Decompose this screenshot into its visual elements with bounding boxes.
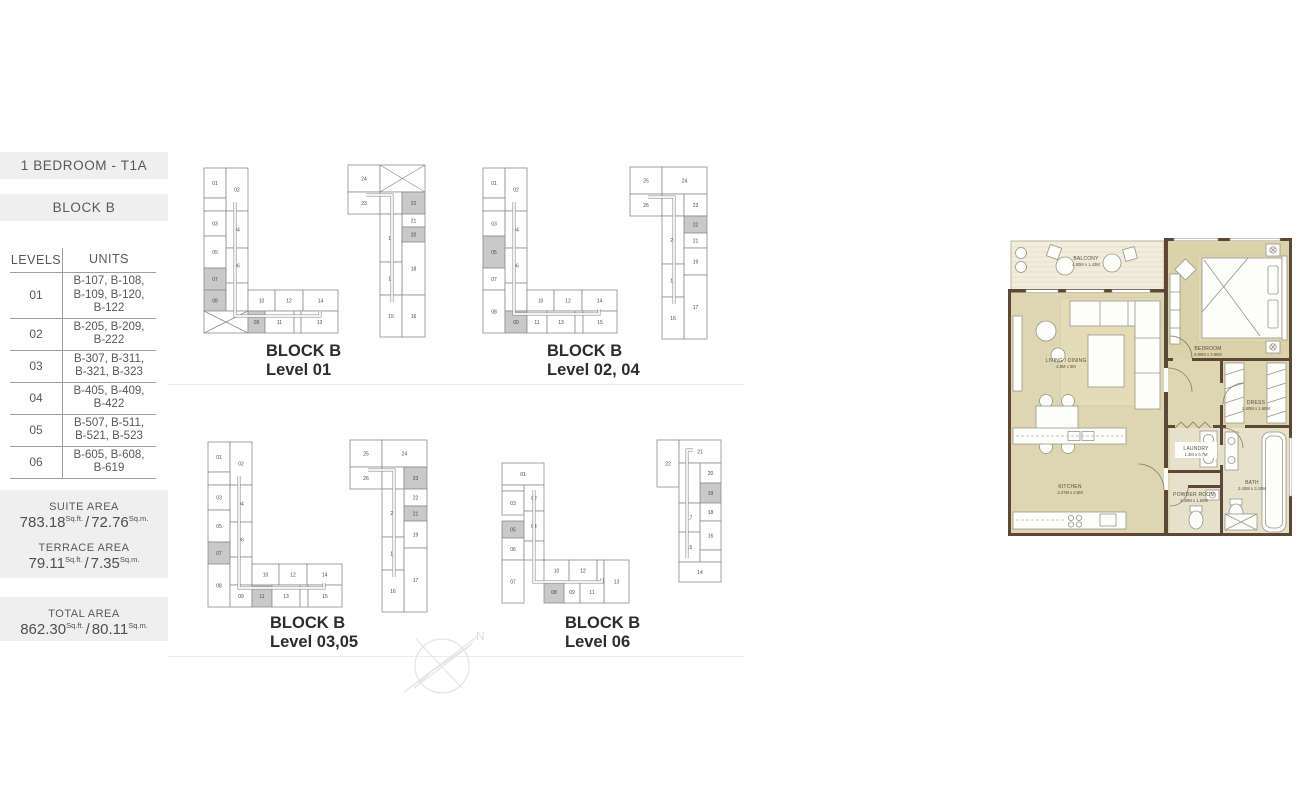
table-header-row: LEVELS UNITS xyxy=(10,248,156,273)
unit-number: 19 xyxy=(693,259,699,265)
unit-number: 10 xyxy=(554,568,560,574)
room-name-label: LAUNDRY xyxy=(1183,446,1209,452)
unit-number: 03 xyxy=(510,501,516,507)
unit-number: 02 xyxy=(238,461,244,467)
terrace-area-value: 79.11Sq.ft./7.35Sq.m. xyxy=(0,555,168,572)
unit-number: 05 xyxy=(510,527,516,533)
svg-text:N: N xyxy=(476,629,485,643)
levels-units-table: LEVELS UNITS 01B-107, B-108, B-109, B-12… xyxy=(10,248,156,479)
unit-number: 09 xyxy=(238,594,244,600)
room-name-label: KITCHEN xyxy=(1058,484,1082,490)
unit-number: 23 xyxy=(693,203,699,209)
room-name-label: LIVING / DINING xyxy=(1045,358,1086,364)
unit-cell xyxy=(502,485,524,491)
unit-number: 11 xyxy=(259,594,264,600)
block-diagram-level-06: 0103020504060710121308091122212019181716… xyxy=(497,427,737,619)
room-dims-label: 2.40M x 1.60M xyxy=(1242,406,1270,411)
divider-line xyxy=(168,384,744,385)
unit-cell xyxy=(226,283,248,311)
unit-number: 10 xyxy=(259,298,265,304)
unit-type-header: 1 BEDROOM - T1A xyxy=(0,152,168,179)
unit-number: 08 xyxy=(216,583,222,589)
unit-number: 16 xyxy=(390,589,396,595)
unit-number: 20 xyxy=(411,232,417,238)
unit-number: 16 xyxy=(708,533,714,539)
unit-number: 13 xyxy=(614,579,620,585)
total-area-value: 862.30Sq.ft./80.11Sq.m. xyxy=(0,621,168,638)
unit-number: 24 xyxy=(682,178,688,184)
compass-icon: N xyxy=(396,624,496,704)
diagram-caption-level-06: BLOCK BLevel 06 xyxy=(565,614,640,652)
block-diagram-level-02-04: 0102030405060708101214091113152524262322… xyxy=(479,153,719,345)
unit-number: 05 xyxy=(216,524,222,530)
suite-terrace-area-box: SUITE AREA 783.18Sq.ft./72.76Sq.m. TERRA… xyxy=(0,490,168,578)
unit-number: 17 xyxy=(693,305,699,311)
diagram-caption-level-03-05: BLOCK BLevel 03,05 xyxy=(270,614,358,652)
unit-number: 12 xyxy=(565,298,571,304)
unit-cell xyxy=(505,283,527,311)
unit-number: 05 xyxy=(212,250,218,256)
unit-number: 15 xyxy=(322,594,328,600)
unit-number: 17 xyxy=(413,578,419,584)
suite-area-value: 783.18Sq.ft./72.76Sq.m. xyxy=(0,514,168,531)
unit-number: 14 xyxy=(597,298,603,304)
level-cell: 05 xyxy=(10,423,62,437)
block-diagram-level-03-05: 0102030405060708101214091113152524262322… xyxy=(204,427,444,619)
units-cell: B-507, B-511, B-521, B-523 xyxy=(62,415,156,446)
unit-number: 26 xyxy=(643,203,649,209)
room-dims-label: 3.37M x 2.8M xyxy=(1057,490,1083,495)
unit-number: 10 xyxy=(263,572,269,578)
table-row: 04B-405, B-409, B-422 xyxy=(10,383,156,415)
unit-number: 20 xyxy=(708,471,714,477)
unit-cell xyxy=(230,557,252,585)
room-dims-label: 5.90M x 3.90M xyxy=(1194,352,1222,357)
floor-plan: BALCONY4.80M x 1.43MLIVING / DINING4.8M … xyxy=(1008,238,1292,545)
unit-number: 12 xyxy=(290,572,296,578)
block-diagram-level-01: 0102030405060708101214091113242322211920… xyxy=(200,153,440,345)
unit-number: 01 xyxy=(520,472,526,478)
room-name-label: BEDROOM xyxy=(1194,346,1221,352)
unit-number: 08 xyxy=(212,298,218,304)
unit-number: 15 xyxy=(597,320,603,326)
level-cell: 03 xyxy=(10,359,62,373)
level-cell: 06 xyxy=(10,455,62,469)
unit-number: 22 xyxy=(411,201,417,207)
unit-number: 16 xyxy=(670,316,676,322)
unit-number: 24 xyxy=(402,451,408,457)
unit-cell xyxy=(294,311,301,333)
unit-number: 13 xyxy=(558,320,564,326)
diagram-caption-level-02-04: BLOCK BLevel 02, 04 xyxy=(547,342,640,380)
unit-number: 01 xyxy=(216,455,222,461)
table-row: 06B-605, B-608, B-619 xyxy=(10,447,156,479)
unit-number: 11 xyxy=(589,590,594,596)
unit-number: 26 xyxy=(363,476,369,482)
unit-number: 02 xyxy=(234,187,240,193)
unit-number: 14 xyxy=(322,572,328,578)
unit-cell xyxy=(679,463,700,503)
unit-number: 25 xyxy=(363,451,369,457)
units-column-header: UNITS xyxy=(62,248,156,272)
unit-number: 01 xyxy=(491,181,497,187)
room-dims-label: 1.40M x 1.50M xyxy=(1180,498,1208,503)
unit-number: 19 xyxy=(413,532,419,538)
unit-number: 07 xyxy=(212,277,218,283)
unit-number: 22 xyxy=(413,495,419,501)
unit-number: 09 xyxy=(569,590,575,596)
levels-column-header: LEVELS xyxy=(10,248,62,272)
total-area-box: TOTAL AREA 862.30Sq.ft./80.11Sq.m. xyxy=(0,597,168,641)
unit-number: 16 xyxy=(411,314,417,320)
room-name-label: POWDER ROOM xyxy=(1173,492,1215,498)
unit-number: 09 xyxy=(513,320,519,326)
unit-number: 08 xyxy=(551,590,557,596)
unit-number: 11 xyxy=(534,320,539,326)
unit-number: 13 xyxy=(283,594,289,600)
bedroom-wardrobe xyxy=(1170,274,1180,344)
unit-number: 23 xyxy=(361,201,367,207)
unit-number: 08 xyxy=(491,309,497,315)
suite-area-label: SUITE AREA xyxy=(0,501,168,513)
unit-number: 02 xyxy=(513,187,519,193)
unit-cell xyxy=(597,560,604,581)
page: { "sidebar": { "unit_type": "1 BEDROOM -… xyxy=(0,0,1300,800)
unit-number: 12 xyxy=(580,568,586,574)
bed xyxy=(1202,256,1287,340)
tv-unit xyxy=(1013,316,1022,391)
room-dims-label: 4.80M x 1.43M xyxy=(1072,262,1100,267)
unit-number: 21 xyxy=(411,218,417,224)
table-row: 01B-107, B-108, B-109, B-120, B-122 xyxy=(10,273,156,319)
room-dims-label: 1.4M x 0.7M xyxy=(1184,452,1208,457)
unit-number: 11 xyxy=(277,320,282,326)
room-dims-label: 4.8M x 5M xyxy=(1056,364,1076,369)
coffee-table xyxy=(1088,335,1124,387)
terrace-area-label: TERRACE AREA xyxy=(0,542,168,554)
unit-number: 14 xyxy=(697,570,703,576)
unit-number: 13 xyxy=(317,320,323,326)
unit-number: 25 xyxy=(643,178,649,184)
unit-number: 21 xyxy=(413,511,419,517)
table-divider xyxy=(62,248,63,479)
table-row: 05B-507, B-511, B-521, B-523 xyxy=(10,415,156,447)
level-cell: 02 xyxy=(10,327,62,341)
unit-number: 03 xyxy=(212,221,218,227)
block-header: BLOCK B xyxy=(0,194,168,221)
total-area-label: TOTAL AREA xyxy=(0,608,168,620)
units-cell: B-605, B-608, B-619 xyxy=(62,447,156,478)
unit-number: 23 xyxy=(413,476,419,482)
unit-number: 10 xyxy=(538,298,544,304)
unit-number: 12 xyxy=(286,298,292,304)
unit-number: 18 xyxy=(708,510,714,516)
unit-number: 22 xyxy=(665,461,671,467)
unit-cell xyxy=(204,198,226,211)
unit-number: 19 xyxy=(708,491,714,497)
room-dims-label: 2.40M x 3.10M xyxy=(1238,486,1266,491)
units-cell: B-307, B-311, B-321, B-323 xyxy=(62,351,156,382)
table-row: 03B-307, B-311, B-321, B-323 xyxy=(10,351,156,383)
armchair xyxy=(1036,321,1056,341)
unit-number: 15 xyxy=(388,314,394,320)
level-cell: 01 xyxy=(10,288,62,302)
unit-cell xyxy=(483,198,505,211)
unit-number: 01 xyxy=(212,181,218,187)
room-name-label: BATH xyxy=(1245,480,1259,486)
unit-number: 03 xyxy=(216,495,222,501)
unit-number: 03 xyxy=(491,221,497,227)
unit-number: 07 xyxy=(216,551,222,557)
unit-cell xyxy=(208,472,230,485)
unit-number: 21 xyxy=(697,449,703,455)
unit-number: 18 xyxy=(411,266,417,272)
units-cell: B-107, B-108, B-109, B-120, B-122 xyxy=(62,273,156,318)
unit-number: 06 xyxy=(510,547,516,553)
unit-number: 07 xyxy=(491,277,497,283)
room-name-label: DRESS xyxy=(1247,400,1266,406)
table-row: 02B-205, B-209, B-222 xyxy=(10,319,156,351)
room-name-label: BALCONY xyxy=(1073,256,1099,262)
unit-number: 24 xyxy=(361,176,367,182)
unit-number: 09 xyxy=(254,320,260,326)
unit-number: 21 xyxy=(693,238,699,244)
units-cell: B-405, B-409, B-422 xyxy=(62,383,156,414)
units-cell: B-205, B-209, B-222 xyxy=(62,319,156,350)
unit-number: 14 xyxy=(318,298,324,304)
diagram-caption-level-01: BLOCK BLevel 01 xyxy=(266,342,341,380)
unit-cell xyxy=(700,550,721,562)
levels-table-body: 01B-107, B-108, B-109, B-120, B-12202B-2… xyxy=(10,273,156,479)
unit-number: 05 xyxy=(491,250,497,256)
level-cell: 04 xyxy=(10,391,62,405)
unit-number: 22 xyxy=(693,222,699,228)
unit-number: 07 xyxy=(510,579,516,585)
